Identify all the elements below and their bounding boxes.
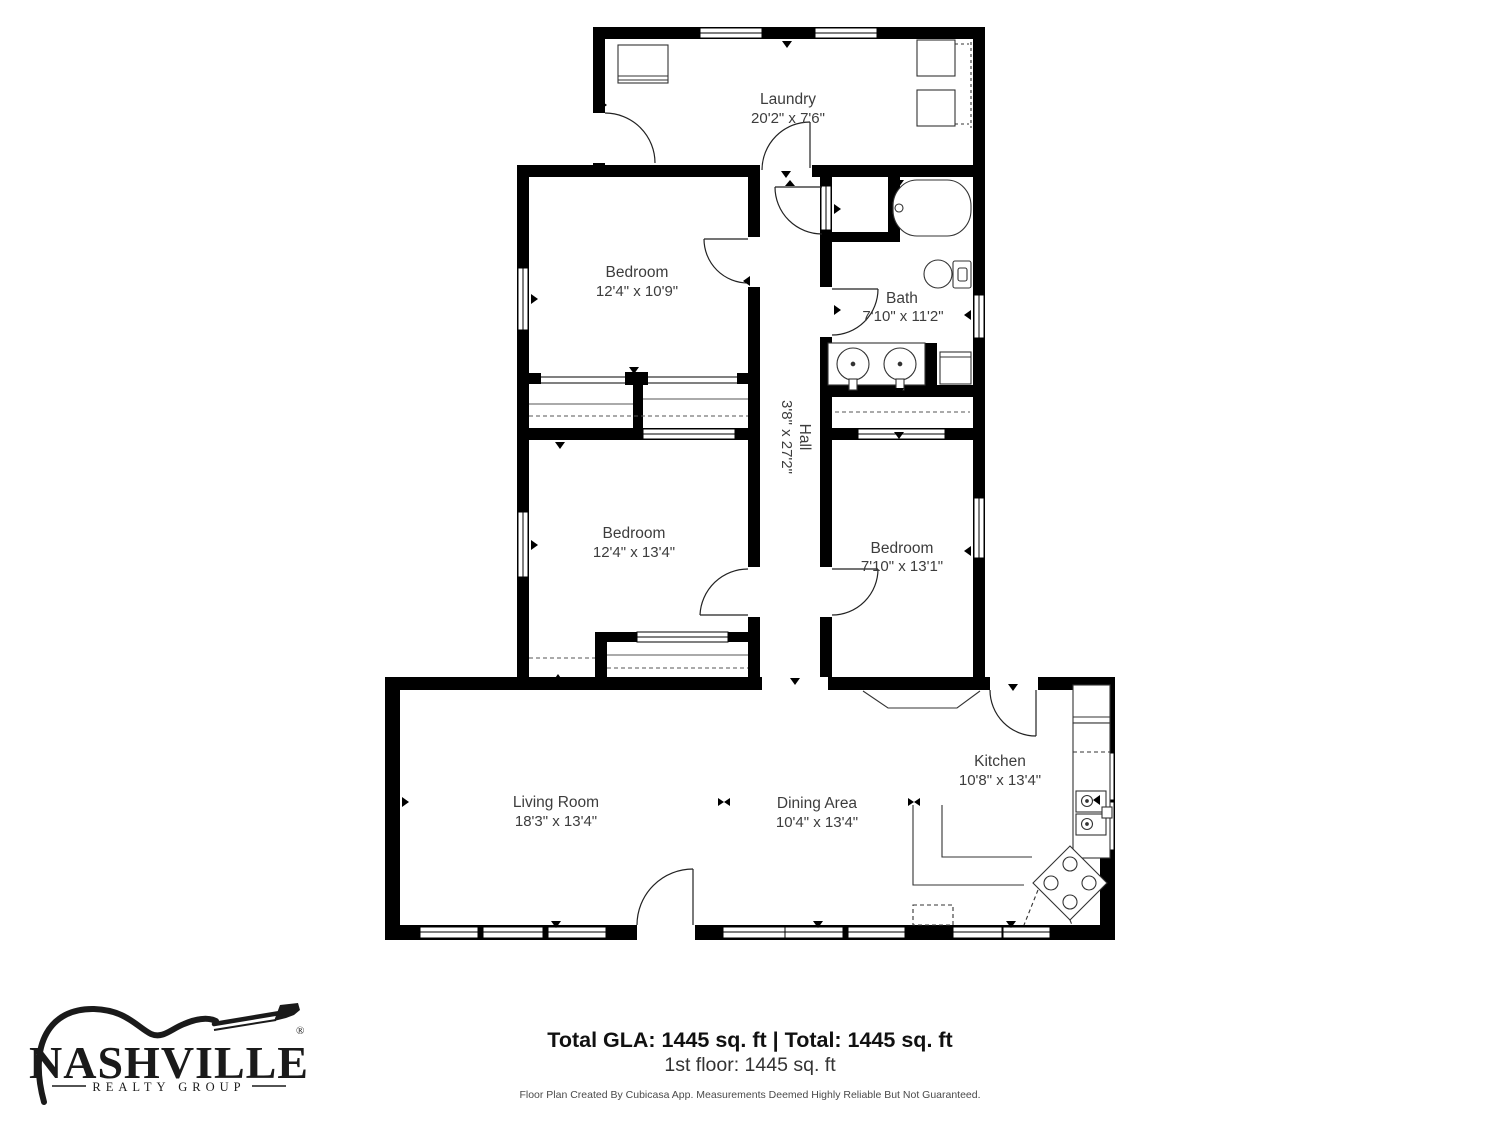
room-label-dining-dims: 10'4" x 13'4" xyxy=(776,814,858,831)
room-label-hall-dims: 3'8" x 27'2" xyxy=(778,400,795,474)
room-label-bedroom3-dims: 7'10" x 13'1" xyxy=(861,558,943,575)
footer-floor: 1st floor: 1445 sq. ft xyxy=(664,1054,836,1076)
washer-left xyxy=(618,45,668,83)
room-label-bedroom1-dims: 12'4" x 10'9" xyxy=(596,283,678,300)
linen-shelf xyxy=(940,352,971,384)
logo-tagline: REALTY GROUP xyxy=(92,1080,245,1094)
brand-logo: NASHVILLE ® REALTY GROUP xyxy=(29,1003,309,1102)
room-label-bedroom2-name: Bedroom xyxy=(603,525,666,542)
room-label-laundry-name: Laundry xyxy=(760,91,816,108)
vanity-double-sink xyxy=(828,343,925,390)
room-label-kitchen-dims: 10'8" x 13'4" xyxy=(959,772,1041,789)
walls xyxy=(385,27,1115,940)
fridge xyxy=(1073,685,1110,723)
room-label-laundry-dims: 20'2" x 7'6" xyxy=(751,110,825,127)
logo-registered-mark: ® xyxy=(296,1025,304,1037)
room-label-living-name: Living Room xyxy=(513,794,599,811)
footer-disclaimer: Floor Plan Created By Cubicasa App. Meas… xyxy=(519,1089,980,1101)
room-label-kitchen-name: Kitchen xyxy=(974,753,1026,770)
toilet xyxy=(924,260,971,288)
kitchen-peninsula xyxy=(913,805,1032,925)
footer-totals: Total GLA: 1445 sq. ft | Total: 1445 sq.… xyxy=(547,1028,952,1052)
room-label-dining-name: Dining Area xyxy=(777,795,858,812)
room-label-bedroom1-name: Bedroom xyxy=(606,264,669,281)
room-label-living-dims: 18'3" x 13'4" xyxy=(515,813,597,830)
room-label-bath-dims: 7'10" x 11'2" xyxy=(862,308,943,325)
floor-plan-canvas: Laundry 20'2" x 7'6" Bedroom 12'4" x 10'… xyxy=(0,0,1500,1125)
dining-niche xyxy=(863,691,980,708)
floor-plan-page: Laundry 20'2" x 7'6" Bedroom 12'4" x 10'… xyxy=(0,0,1500,1125)
washer-dryer-right xyxy=(917,40,971,128)
room-label-bedroom2-dims: 12'4" x 13'4" xyxy=(593,544,675,561)
room-label-bath-name: Bath xyxy=(886,290,918,307)
bathtub xyxy=(893,180,971,236)
footer: NASHVILLE ® REALTY GROUP Total GLA: 1445… xyxy=(29,1003,981,1102)
room-label-hall-name: Hall xyxy=(796,424,813,451)
room-label-bedroom3-name: Bedroom xyxy=(871,540,934,557)
